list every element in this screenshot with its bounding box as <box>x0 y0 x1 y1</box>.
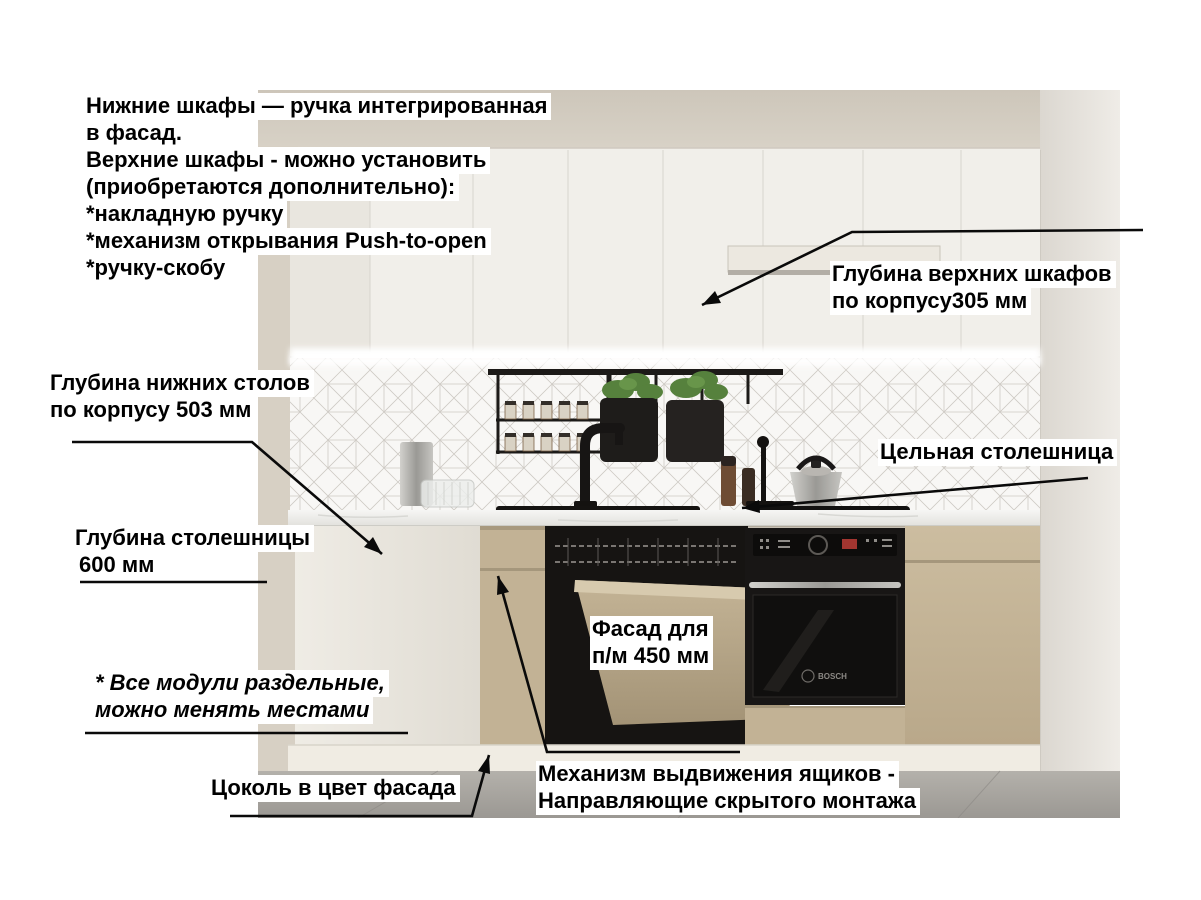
kitchen-infographic: BOSCH <box>0 0 1201 900</box>
label-plinth: Цоколь в цвет фасада <box>209 775 460 802</box>
label-modules-note: * Все модули раздельные, можно менять ме… <box>93 670 389 724</box>
handles-note-line: (приобретаются дополнительно): <box>84 174 459 201</box>
oven-lower-drawer <box>745 707 905 745</box>
kettle <box>790 458 842 511</box>
label-upper-cabinet-depth: Глубина верхних шкафов по корпусу305 мм <box>830 261 1116 315</box>
label-countertop-depth: Глубина столешницы 600 мм <box>73 525 314 579</box>
handles-note-line: в фасад. <box>84 120 186 147</box>
label-solid-countertop: Цельная столешница <box>878 439 1117 466</box>
right-beige-cabinet <box>905 526 1040 745</box>
handles-note-line: *механизм открывания Push-to-open <box>84 228 491 255</box>
handles-note-line: *накладную ручку <box>84 201 287 228</box>
glass-bowl <box>421 480 474 507</box>
label-handles-note: Нижние шкафы — ручка интегрированная в ф… <box>84 93 551 282</box>
countertop <box>288 510 1040 526</box>
handles-note-line: Верхние шкафы - можно установить <box>84 147 490 174</box>
label-base-cabinet-depth: Глубина нижних столов по корпусу 503 мм <box>48 370 314 424</box>
oven: BOSCH <box>745 528 905 705</box>
handles-note-line: Нижние шкафы — ручка интегрированная <box>84 93 551 120</box>
oven-brand-text: BOSCH <box>818 672 847 681</box>
label-dishwasher-front: Фасад для п/м 450 мм <box>590 616 713 670</box>
handles-note-line: *ручку-скобу <box>84 255 229 282</box>
corner-beige-cabinet <box>480 526 545 745</box>
label-drawer-mechanism: Механизм выдвижения ящиков - Направляющи… <box>536 761 920 815</box>
